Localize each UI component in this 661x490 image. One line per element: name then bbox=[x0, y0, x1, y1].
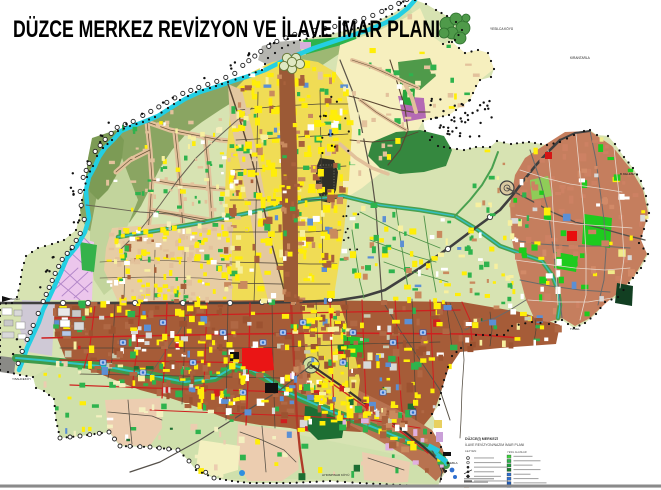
svg-text:KAYNASLI: KAYNASLI bbox=[5, 297, 20, 301]
svg-text:SEBLA: SEBLA bbox=[448, 461, 458, 465]
svg-text:DÜZCE MERKEZ REVİZYON VE İLAVE: DÜZCE MERKEZ REVİZYON VE İLAVE İMAR PLAN… bbox=[13, 16, 440, 43]
svg-text:KIRANTARLA: KIRANTARLA bbox=[570, 56, 591, 60]
svg-text:DÜZCE(İ) MERKEZİ: DÜZCE(İ) MERKEZİ bbox=[465, 436, 498, 441]
svg-text:B.MEHMET: B.MEHMET bbox=[620, 172, 636, 176]
svg-text:LEJYEN: LEJYEN bbox=[465, 449, 476, 453]
svg-text:AYDINPINAR KÖYÜ: AYDINPINAR KÖYÜ bbox=[322, 473, 349, 477]
svg-text:İLAVE REVİZYON/NAZIM İMAR PLAN: İLAVE REVİZYON/NAZIM İMAR PLANI bbox=[465, 442, 524, 447]
svg-text:Y.BAHCEKÖY: Y.BAHCEKÖY bbox=[12, 377, 31, 381]
svg-text:TÜNEL: TÜNEL bbox=[570, 327, 580, 331]
svg-text:YESIL ALANLAR: YESIL ALANLAR bbox=[507, 450, 527, 454]
svg-text:YESILCA KÖYÜ: YESILCA KÖYÜ bbox=[490, 27, 514, 31]
